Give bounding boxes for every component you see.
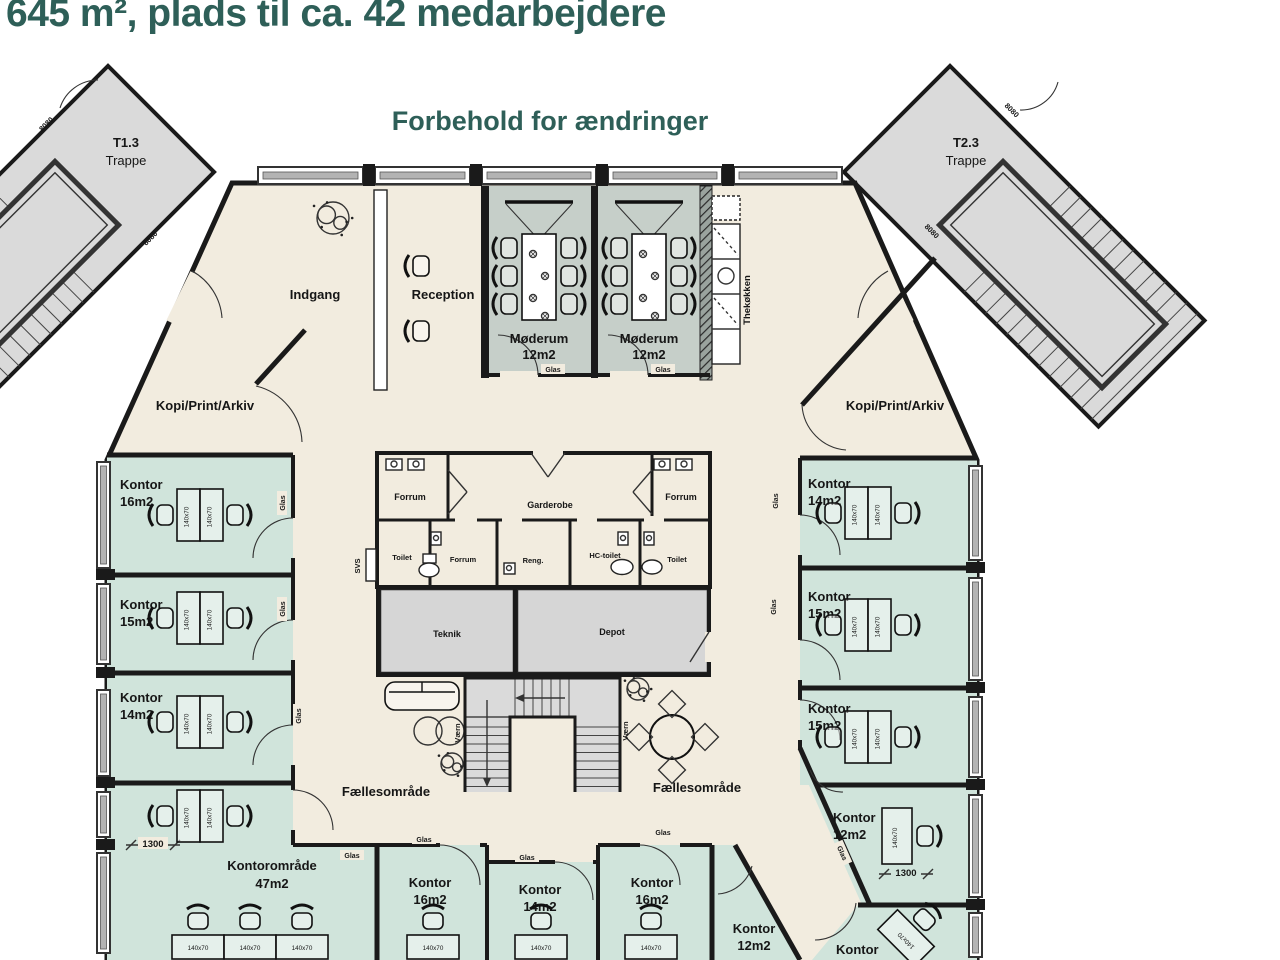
desk-size-label: 140x70	[641, 945, 662, 952]
entrance-label: Indgang	[290, 287, 341, 302]
plant-dot	[643, 699, 646, 702]
chair	[895, 615, 911, 635]
plant-dot	[650, 688, 653, 691]
stair-right-id: T2.3	[953, 135, 979, 150]
window-glass	[973, 582, 979, 676]
desk-size-label: 140x70	[875, 728, 882, 749]
desk-size-label: 140x70	[188, 945, 209, 952]
svg-text:Kontor: Kontor	[120, 597, 163, 612]
svg-text:1300: 1300	[142, 839, 163, 850]
chair	[227, 712, 243, 732]
glas-text: Glas	[296, 708, 303, 723]
svg-text:Kontor: Kontor	[519, 882, 562, 897]
common-area-left: Fællesområde	[342, 784, 430, 799]
window-glass	[973, 917, 979, 953]
chair	[227, 505, 243, 525]
svg-text:Kontor: Kontor	[836, 942, 879, 957]
glas-text: Glas	[416, 837, 431, 844]
desk-size-label: 140x70	[184, 713, 191, 734]
svg-text:Kontorområde: Kontorområde	[227, 858, 317, 873]
desk-size-label: 140x70	[875, 616, 882, 637]
svg-text:Kontor: Kontor	[833, 810, 876, 825]
plant-dot	[345, 220, 348, 223]
chair	[917, 826, 933, 846]
chair	[825, 727, 841, 747]
chair	[413, 256, 429, 276]
chair	[561, 266, 577, 286]
svg-text:47m2: 47m2	[255, 876, 288, 891]
forrum-label: Forrum	[665, 492, 697, 502]
plant-dot	[443, 769, 446, 772]
chair	[227, 806, 243, 826]
meeting-room-name: Møderum	[510, 331, 569, 346]
chair	[501, 238, 517, 258]
desk-size-label: 140x70	[852, 504, 859, 525]
glas-label: Glas	[293, 704, 303, 728]
svg-text:Kontor: Kontor	[733, 921, 776, 936]
desk-size-label: 140x70	[184, 807, 191, 828]
glas-label: Glas	[541, 364, 565, 374]
chair	[157, 608, 173, 628]
glas-text: Glas	[655, 830, 670, 837]
plant-dot	[460, 765, 463, 768]
desk-size-label: 140x70	[892, 827, 899, 848]
chair	[157, 806, 173, 826]
meeting-room-size: 12m2	[522, 347, 555, 362]
svg-text:Kontor: Kontor	[120, 690, 163, 705]
glas-label: Glas	[412, 834, 436, 844]
plant-dot	[313, 205, 316, 208]
plant-dot	[646, 690, 649, 693]
chair	[671, 238, 687, 258]
wall	[591, 186, 598, 378]
vaern-label: Værn	[621, 721, 630, 741]
door-arc	[1020, 82, 1058, 110]
glas-text: Glas	[519, 855, 534, 862]
door-code-label: 8080	[1003, 101, 1021, 119]
chair	[611, 294, 627, 314]
reception-counter	[374, 190, 387, 390]
svg-text:Kontor: Kontor	[120, 477, 163, 492]
glas-label: Glas	[651, 827, 675, 837]
glas-text: Glas	[655, 367, 670, 374]
stair-left-id: T1.3	[113, 135, 139, 150]
plant-dot	[633, 677, 636, 680]
chair	[531, 913, 551, 929]
glas-label: Glas	[515, 852, 539, 862]
chair	[423, 913, 443, 929]
chair	[188, 913, 208, 929]
desk-size-label: 140x70	[852, 616, 859, 637]
chair	[227, 608, 243, 628]
glas-text: Glas	[545, 367, 560, 374]
floorplan-page: 645 m², plads til ca. 42 medarbejdere Fo…	[0, 0, 1280, 960]
desk-size-label: 140x70	[875, 504, 882, 525]
plant-dot	[629, 694, 632, 697]
desk-size-label: 140x70	[423, 945, 444, 952]
plant-dot	[320, 226, 323, 229]
svs-label: SVS	[353, 558, 362, 573]
desk-size-label: 140x70	[184, 506, 191, 527]
meeting-table	[632, 234, 666, 320]
chair	[895, 727, 911, 747]
window-glass	[101, 857, 107, 949]
common-area-right: Fællesområde	[653, 780, 741, 795]
glas-label: Glas	[277, 491, 287, 515]
window-glass	[263, 172, 358, 179]
window-glass	[380, 172, 465, 179]
svg-text:1300: 1300	[895, 868, 916, 879]
kitchen-label: Thekøkken	[742, 275, 753, 325]
chair	[895, 503, 911, 523]
chair	[611, 266, 627, 286]
glas-text: Glas	[280, 601, 287, 616]
meeting-room-name: Møderum	[620, 331, 679, 346]
glas-label: Glas	[770, 489, 780, 513]
window-glass	[973, 701, 979, 773]
meeting-room-size: 12m2	[632, 347, 665, 362]
glas-text: Glas	[771, 599, 778, 614]
hatched-wall	[700, 186, 712, 380]
floorplan-drawing: 645 m², plads til ca. 42 medarbejdere Fo…	[0, 0, 1280, 960]
plant-dot	[624, 679, 627, 682]
desk-size-label: 140x70	[207, 713, 214, 734]
teknik-label: Teknik	[433, 629, 462, 639]
forrum-label: Forrum	[450, 555, 477, 564]
chair	[671, 266, 687, 286]
plant-dot	[438, 754, 441, 757]
svg-text:16m2: 16m2	[120, 494, 153, 509]
chair	[501, 294, 517, 314]
glas-label: Glas	[277, 597, 287, 621]
chair	[561, 294, 577, 314]
reception-label: Reception	[412, 287, 475, 302]
central-stair	[465, 678, 620, 792]
chair	[671, 294, 687, 314]
desk-size-label: 140x70	[292, 945, 313, 952]
plan-note: Forbehold for ændringer	[392, 106, 709, 136]
page-title: 645 m², plads til ca. 42 medarbejdere	[6, 0, 666, 35]
reng-label: Reng.	[523, 556, 544, 565]
svg-text:12m2: 12m2	[833, 827, 866, 842]
chair	[501, 266, 517, 286]
desk-size-label: 140x70	[207, 609, 214, 630]
desk-size-label: 140x70	[531, 945, 552, 952]
window-glass	[973, 470, 979, 556]
stair-right-label: Trappe	[946, 153, 987, 168]
copy-area-left: Kopi/Print/Arkiv	[156, 398, 255, 413]
window-glass	[101, 694, 107, 772]
chair	[157, 712, 173, 732]
depot-label: Depot	[599, 627, 625, 637]
glas-text: Glas	[280, 495, 287, 510]
forrum-label: Forrum	[394, 492, 426, 502]
desk-size-label: 140x70	[852, 728, 859, 749]
glas-label: Glas	[340, 850, 364, 860]
window-glass	[487, 172, 591, 179]
window-glass	[101, 466, 107, 564]
desk-size-label: 140x70	[207, 506, 214, 527]
window-glass	[613, 172, 717, 179]
window-glass	[739, 172, 837, 179]
toilet-label: Toilet	[667, 555, 687, 564]
chair	[611, 238, 627, 258]
stair-left-label: Trappe	[106, 153, 147, 168]
hc-toilet-label: HC-toilet	[589, 551, 621, 560]
garderobe-label: Garderobe	[527, 500, 573, 510]
svg-text:Kontor: Kontor	[631, 875, 674, 890]
wall	[481, 186, 489, 378]
glas-text: Glas	[344, 853, 359, 860]
plant-dot	[326, 201, 329, 204]
window-wall-top	[258, 167, 842, 184]
chair	[292, 913, 312, 929]
chair	[641, 913, 661, 929]
toilet-label: Toilet	[392, 553, 412, 562]
chair	[825, 615, 841, 635]
plant-dot	[447, 752, 450, 755]
chair	[157, 505, 173, 525]
glas-text: Glas	[773, 493, 780, 508]
chair	[825, 503, 841, 523]
glas-label: Glas	[651, 364, 675, 374]
svg-text:12m2: 12m2	[737, 938, 770, 953]
plant-dot	[340, 234, 343, 237]
chair	[561, 238, 577, 258]
chair	[240, 913, 260, 929]
copy-area-right: Kopi/Print/Arkiv	[846, 398, 945, 413]
vaern-label: Værn	[453, 723, 462, 743]
glas-label: Glas	[768, 595, 778, 619]
plant-dot	[351, 217, 354, 220]
chair	[413, 321, 429, 341]
desk-size-label: 140x70	[207, 807, 214, 828]
plant-dot	[457, 774, 460, 777]
meeting-table	[522, 234, 556, 320]
svg-text:Kontor: Kontor	[409, 875, 452, 890]
window-glass	[973, 799, 979, 893]
window-glass	[101, 796, 107, 833]
desk-size-label: 140x70	[240, 945, 261, 952]
window-glass	[101, 588, 107, 660]
desk-size-label: 140x70	[184, 609, 191, 630]
